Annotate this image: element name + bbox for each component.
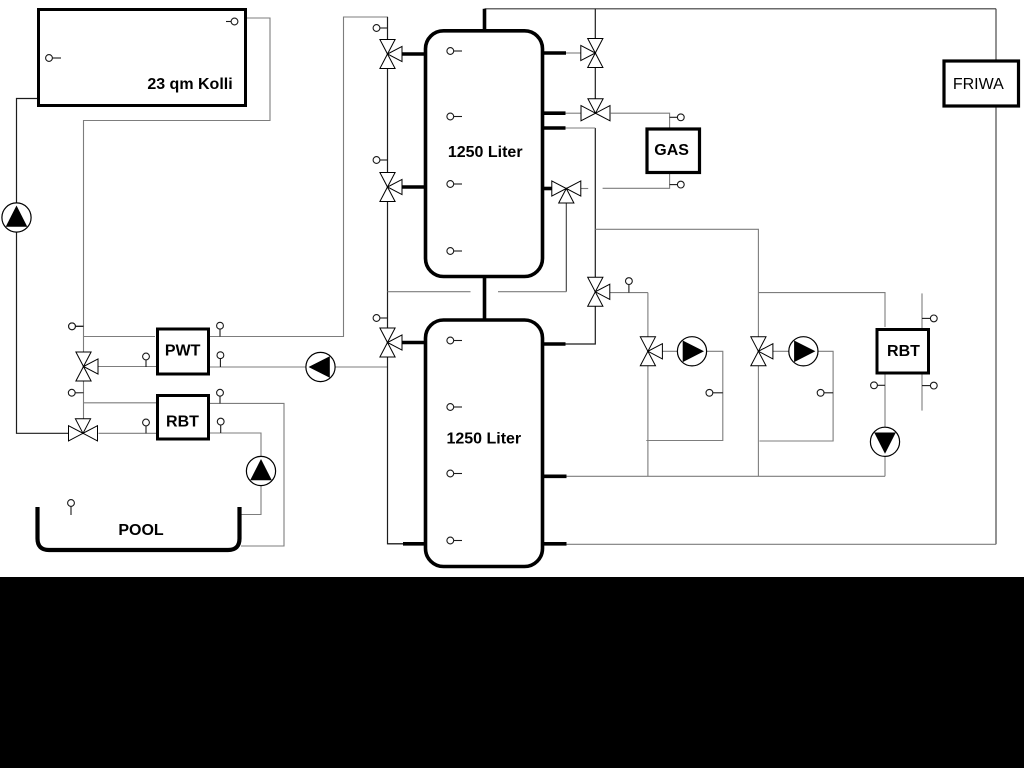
svg-text:RBT: RBT [166, 414, 199, 431]
svg-text:GAS: GAS [654, 142, 689, 159]
svg-text:23 qm Kolli: 23 qm Kolli [147, 76, 232, 93]
svg-text:FRIWA: FRIWA [953, 76, 1004, 93]
svg-text:1250 Liter: 1250 Liter [448, 144, 523, 161]
svg-text:PWT: PWT [165, 343, 201, 360]
svg-text:RBT: RBT [887, 343, 920, 360]
svg-text:1250 Liter: 1250 Liter [446, 431, 521, 448]
svg-text:POOL: POOL [118, 522, 164, 539]
